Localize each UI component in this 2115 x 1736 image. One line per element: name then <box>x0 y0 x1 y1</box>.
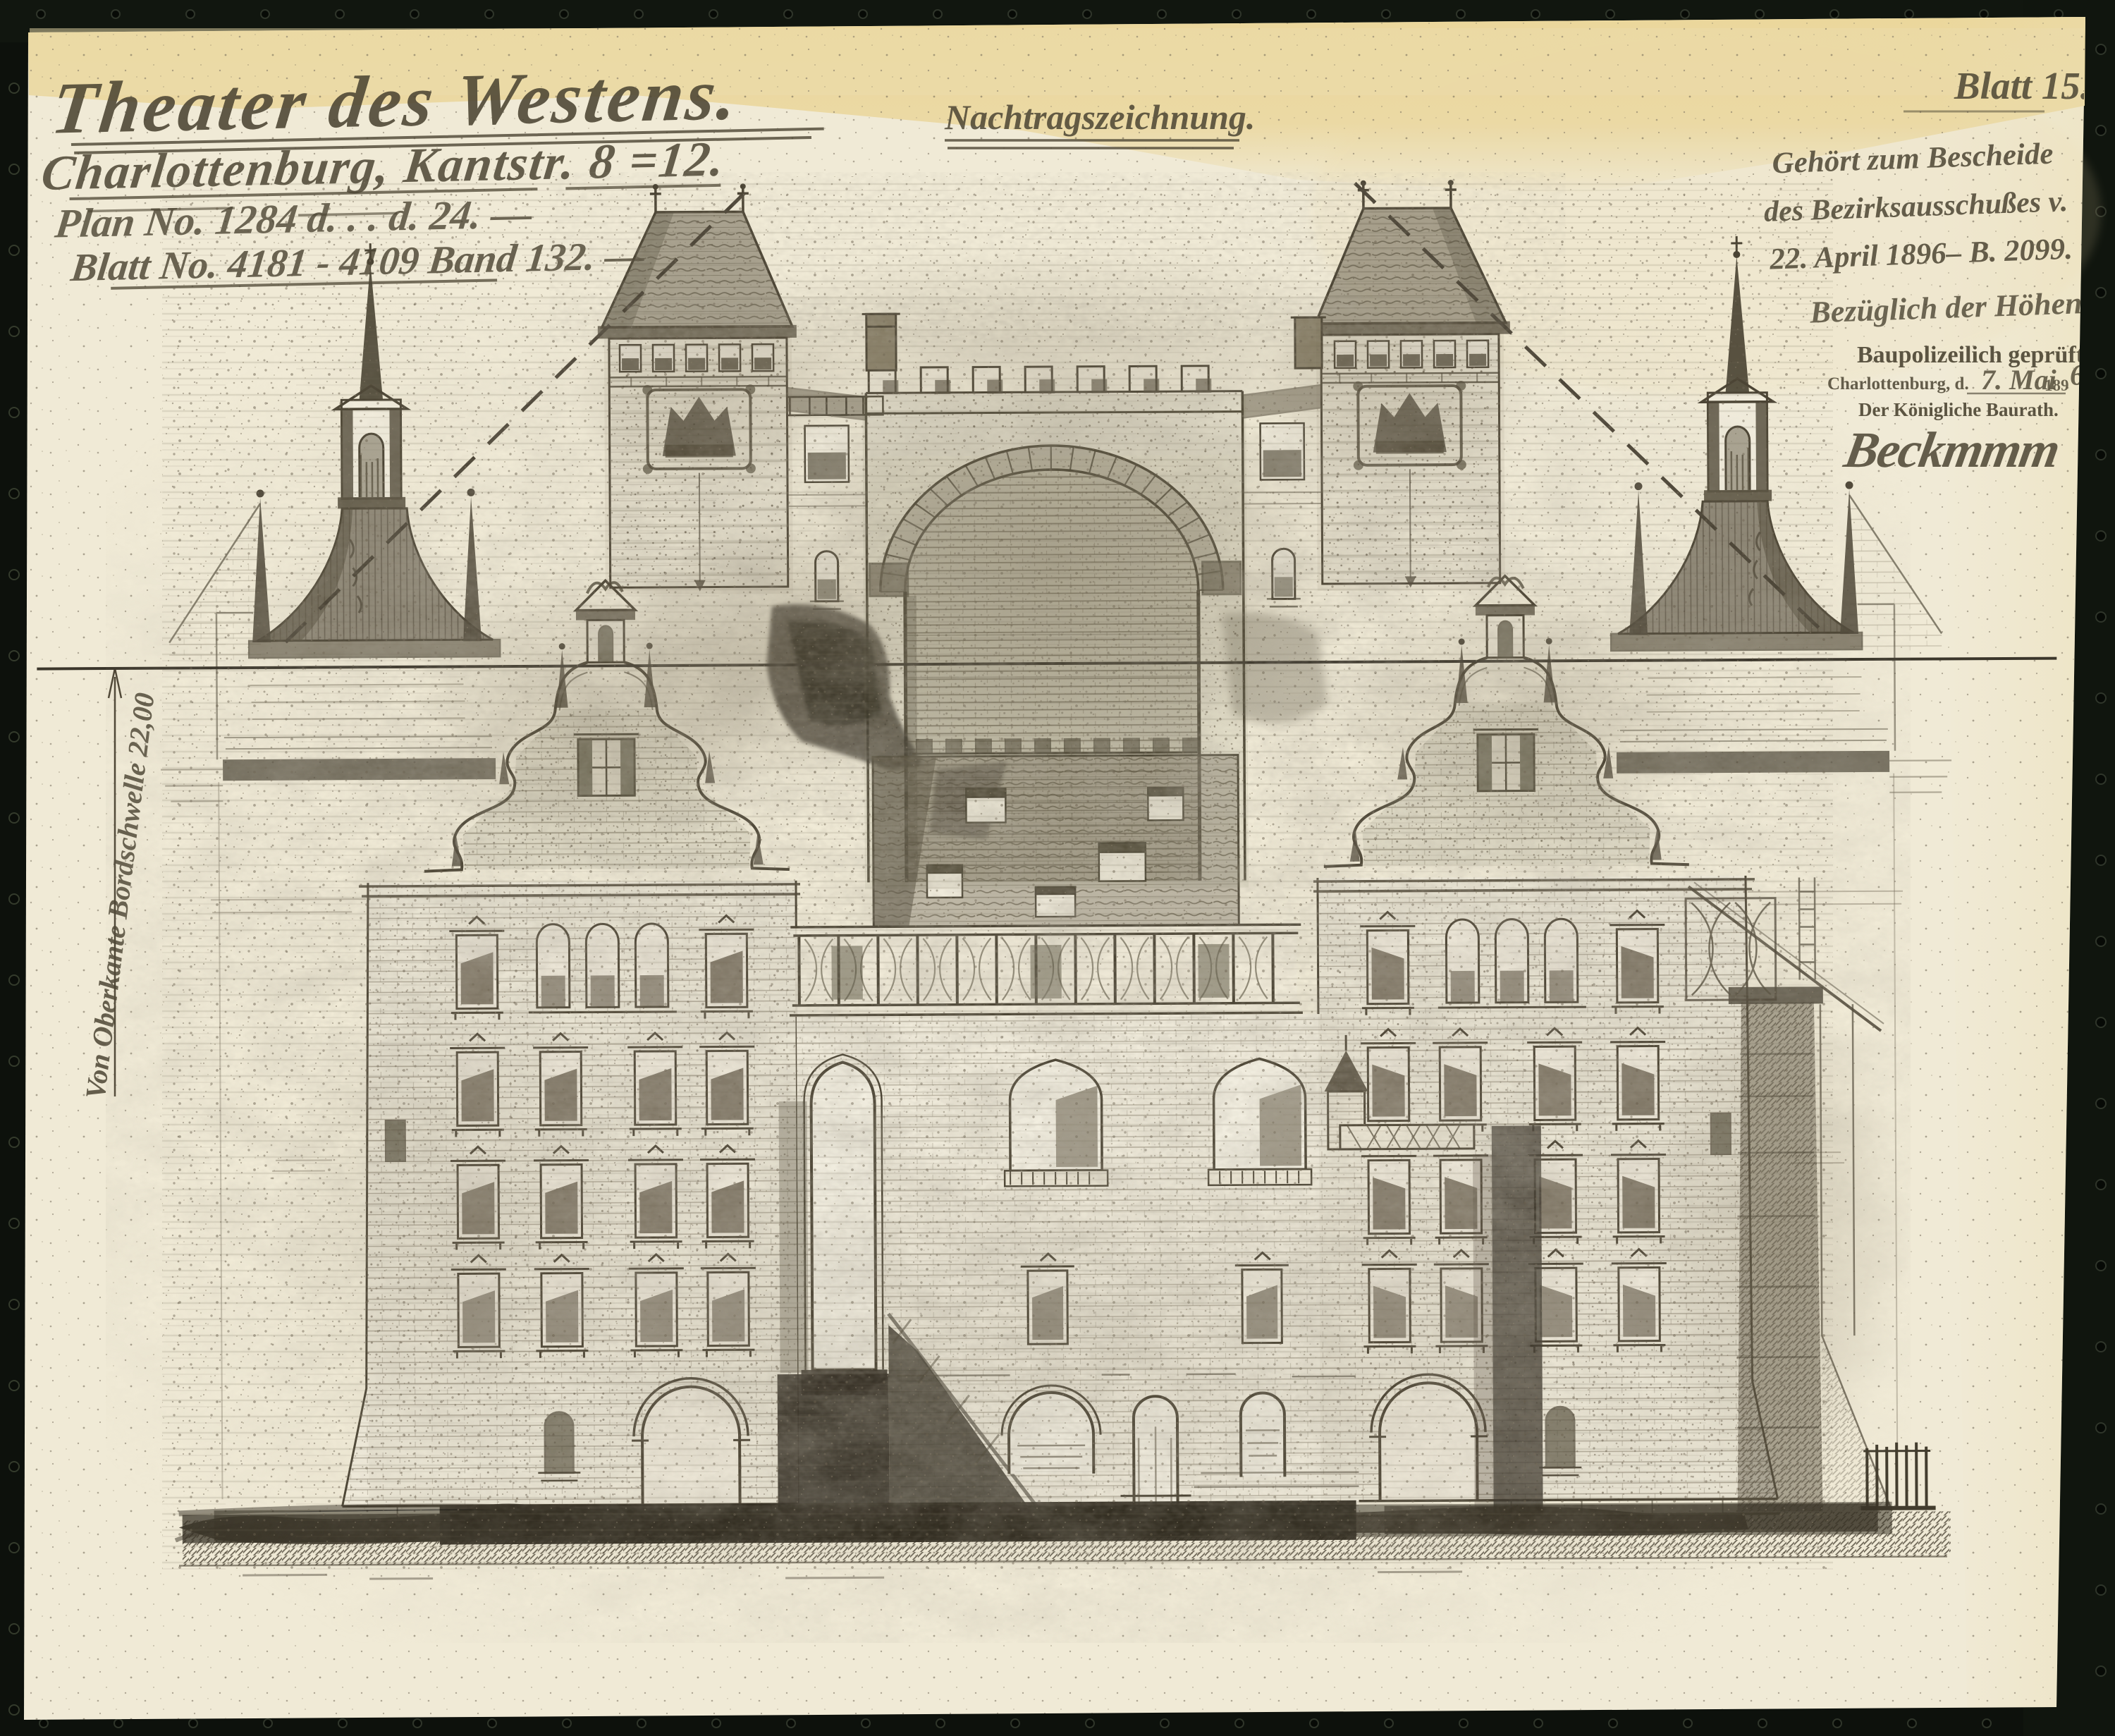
svg-text:Der Königliche Baurath.: Der Königliche Baurath. <box>1858 399 2059 420</box>
svg-text:Nachtragszeichnung.: Nachtragszeichnung. <box>944 97 1255 137</box>
svg-text:189: 189 <box>2044 377 2069 394</box>
svg-text:Charlottenburg, d.: Charlottenburg, d. <box>1827 374 1969 393</box>
svg-text:Beckmmm: Beckmmm <box>1839 421 2063 477</box>
